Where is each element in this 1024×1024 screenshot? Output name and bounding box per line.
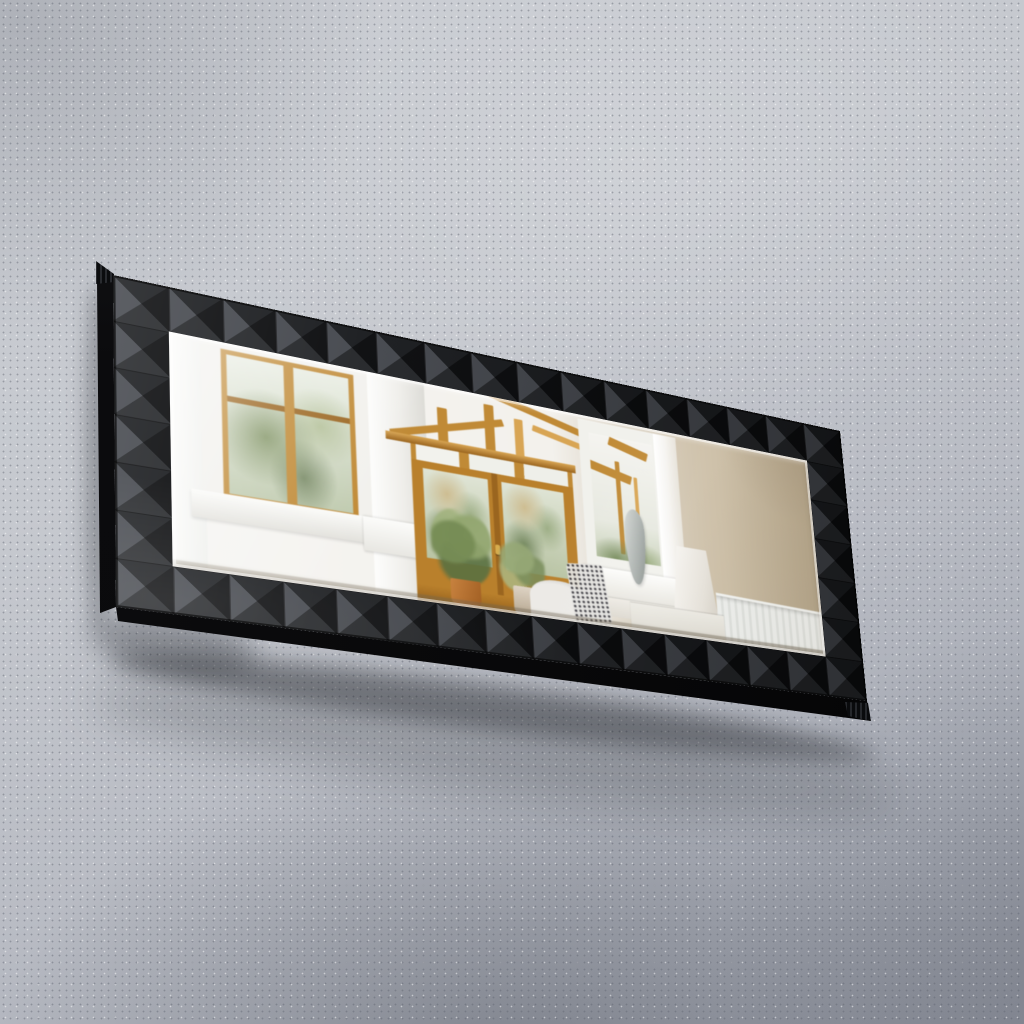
product-photo [0, 0, 1024, 1024]
